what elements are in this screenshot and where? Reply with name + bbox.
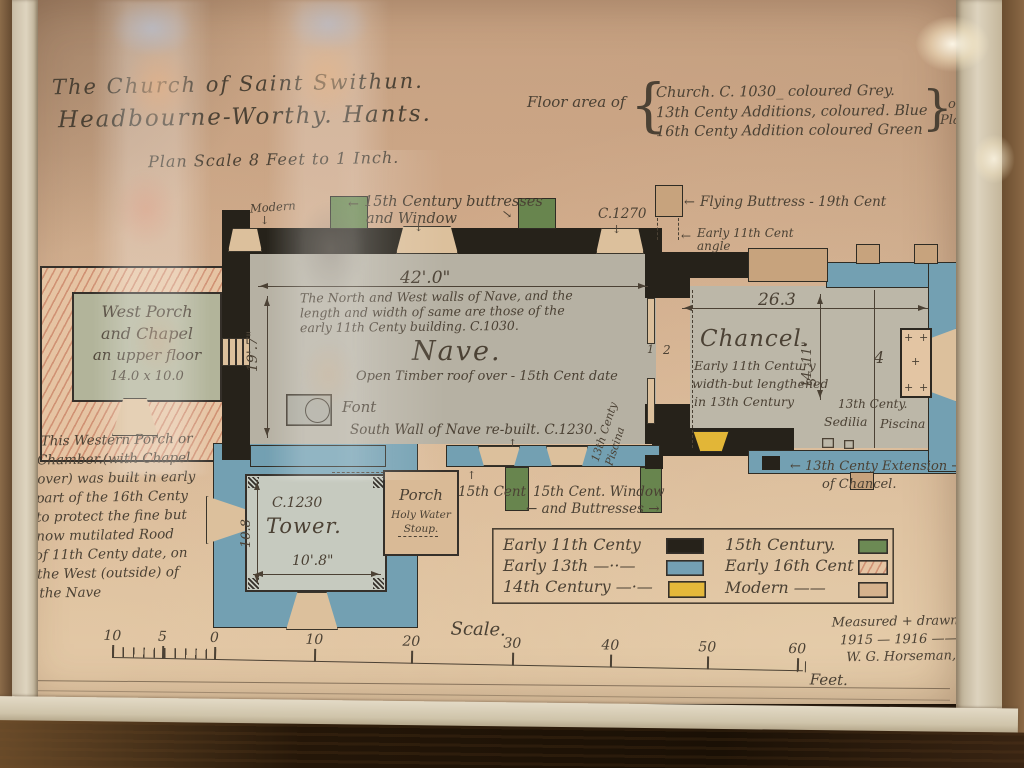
floor-area-prefix: Floor area of: [527, 95, 626, 110]
legend-label-14th: 14th Century —·—: [503, 579, 653, 595]
scale-tick-label-8: 60: [787, 642, 807, 656]
west-porch-note-line9: the Nave: [39, 586, 101, 601]
chancel-bay4: 4: [874, 350, 884, 366]
chancel-width-dimension-line: [682, 308, 928, 309]
extension-line2: of Chancel.: [822, 478, 896, 491]
scale-end-cap: [797, 661, 806, 672]
window-buttresses-line2: ← and Buttresses →: [526, 503, 660, 517]
credit-line1: Measured + drawn: [832, 614, 959, 629]
chancel-south-stub-b: [762, 456, 780, 470]
tower-title: Tower.: [266, 516, 342, 537]
nave-subtitle: Open Timber roof over - 15th Cent date: [356, 370, 618, 383]
flying-buttress-dash-left: [657, 218, 658, 240]
west-porch-note-line2: Chamber.(with Chapel: [37, 452, 191, 468]
legend-swatch-early13: [666, 560, 704, 576]
c1270-label: C.1270: [598, 208, 647, 222]
altar-cross-5: +: [919, 382, 928, 393]
sedilia-seat-b: [844, 440, 854, 449]
tower-horizontal-dimension: 10'.8": [292, 554, 333, 568]
angle-label-line1: Early 11th Cent: [697, 227, 794, 239]
chancel-title: Chancel.: [700, 328, 810, 351]
nave-width-dimension-line: [258, 286, 648, 287]
scale-tick-label-7: 50: [697, 640, 717, 654]
legend-swatch-15th: [858, 539, 888, 554]
scale-tick-6: [610, 655, 612, 668]
scale-tick-0: [112, 645, 114, 658]
modern-window: [228, 228, 262, 252]
west-porch-note-line5: to protect the fine but: [36, 509, 187, 525]
altar-cross-4: +: [904, 382, 913, 393]
cent15-arrow: ↑: [467, 470, 476, 481]
floor-area-line2: 13th Centy Additions, coloured. Blue: [656, 104, 928, 121]
angle-arrow: ←: [681, 230, 691, 242]
legend-label-early11: Early 11th Centy: [503, 537, 641, 553]
scale-tick-label-6: 40: [600, 638, 620, 652]
sedilia-divider: [874, 410, 875, 436]
chancel-north-buttress-a: [856, 244, 880, 264]
plan-scale-note: Plan Scale 8 Feet to 1 Inch.: [148, 150, 400, 170]
nave-height-dimension: 19'.7": [246, 331, 260, 372]
chancel-north-buttress-b: [914, 244, 938, 264]
altar-cross-1: +: [904, 332, 913, 343]
scale-tick-5: [512, 653, 514, 666]
porch-label-line1: Porch: [384, 488, 458, 503]
buttresses-arrow-left: ←: [348, 198, 359, 211]
north-window-15c: [396, 226, 458, 254]
sedilia-heading: 13th Centy.: [838, 398, 907, 410]
west-porch-label-line3: an upper floor: [74, 348, 220, 363]
scale-tick-7: [707, 656, 709, 669]
chancel-north-annex: [748, 248, 828, 282]
scale-tick-label-0: 10: [102, 629, 122, 643]
west-porch-note-line3: over) was built in early: [37, 471, 195, 487]
angle-label-line2: angle: [697, 240, 731, 252]
chancel-arch-jamb-north: [647, 298, 655, 344]
rood-doorway-bars: [228, 338, 244, 366]
altar-cross-3: +: [911, 356, 920, 367]
window-buttresses-line1: 15th Cent. Window: [533, 486, 665, 500]
floor-area-line3: 16th Centy Addition coloured Green: [656, 123, 923, 140]
font-label: Font: [342, 400, 376, 415]
scale-tick-label-4: 20: [401, 635, 421, 649]
legend-label-early16: Early 16th Cent: [725, 558, 854, 574]
chancel-note-line1: Early 11th Century: [694, 360, 816, 373]
legend-label-modern: Modern ——: [725, 580, 826, 596]
south-wall-arrow: ↑: [508, 438, 517, 449]
scale-tick-label-1: 5: [152, 630, 172, 644]
tower-horizontal-dimension-line: [253, 574, 381, 575]
frame-left: [12, 0, 38, 712]
scale-tick-1: [162, 646, 164, 659]
buttresses-arrow-down: ↓: [414, 222, 423, 233]
nave-height-dimension-line: [267, 296, 268, 438]
west-porch-dims: 14.0 x 10.0: [74, 370, 220, 383]
chancel-bay2: 2: [663, 344, 671, 356]
west-porch-note-block: ( This Western Porch or Chamber.(with Ch…: [24, 424, 227, 607]
tower-corner-se: [373, 578, 384, 589]
west-porch-note-line7: of 11th Centy date, on: [35, 547, 188, 563]
nave-south-wall-west: [250, 445, 386, 467]
south-window-15c-b: [546, 446, 588, 466]
flying-buttress-label: Flying Buttress - 19th Cent: [700, 196, 886, 210]
south-wall-note: South Wall of Nave re-built. C.1230.: [350, 424, 597, 438]
legend-swatch-early11: [666, 538, 704, 554]
tower-vertical-dimension: 10.8: [240, 519, 253, 548]
altar-cross-2: +: [919, 332, 928, 343]
west-porch-note-line1: This Western Porch or: [41, 433, 193, 449]
sedilia-label: Sedilia: [824, 416, 867, 429]
nave-title: Nave.: [412, 338, 502, 365]
nave-note-line2: length and width of same are those of th…: [300, 305, 565, 320]
flying-buttress-block: [655, 185, 683, 217]
scale-tick-label-2: 0: [204, 631, 224, 645]
wall-edge-right: [1002, 0, 1024, 768]
buttresses-label-line2: and Window: [366, 212, 457, 227]
porch-label-line2: Holy Water: [384, 510, 458, 521]
chancel-width-dimension: 26.3: [758, 292, 796, 309]
chancel-note-line3: in 13th Century: [694, 396, 794, 409]
chancel-bay3: 3: [806, 378, 819, 386]
flying-buttress-dash-right: [678, 218, 679, 240]
extension-line1: ← 13th Centy Extension →: [790, 460, 962, 473]
modern-label: Modern: [250, 200, 296, 215]
nave-width-dimension: 42'.0": [400, 270, 450, 287]
sedilia-seat-a: [822, 438, 834, 448]
scale-tick-4: [411, 651, 413, 664]
legend-swatch-early16: [858, 560, 888, 575]
scale-title: Scale.: [450, 620, 506, 639]
flying-buttress-arrow: ←: [684, 196, 695, 209]
scale-tick-label-5: 30: [502, 636, 522, 650]
tower-date: C.1230: [272, 496, 322, 510]
chancel-south-stub-a: [645, 455, 663, 469]
nave-note-line3: early 11th Centy building. C.1030.: [300, 320, 519, 335]
c1270-arrow: ↓: [612, 224, 621, 235]
legend-swatch-14th: [668, 581, 706, 598]
west-porch-note-line6: now mutilated Rood: [36, 528, 174, 544]
west-porch-label-line1: West Porch: [74, 304, 220, 320]
cent15-label: 15th Cent: [458, 486, 526, 500]
buttresses-label-line1: 15th Century buttresses: [364, 195, 543, 210]
piscina-label: Piscina: [880, 418, 925, 431]
chancel-north-wall-11c: [662, 252, 750, 278]
tower-dashed-edge: [332, 472, 384, 473]
font-basin-icon: [305, 398, 330, 423]
chancel-arch-jamb-south: [647, 378, 655, 424]
west-porch-note-line8: the West (outside) of: [37, 566, 179, 582]
nave-west-wall-lower: [222, 366, 250, 460]
legend-label-early13: Early 13th —··—: [503, 558, 635, 574]
porch-label-line3: Stoup.: [384, 524, 458, 535]
west-porch-label-line2: and Chapel: [74, 326, 220, 342]
scale-tick-3: [314, 649, 316, 662]
south-porch-dashed: [398, 536, 438, 537]
scale-baseline: [112, 657, 803, 671]
floor-area-line1: Church. C. 1030_ coloured Grey.: [656, 84, 895, 101]
modern-arrow: ↓: [260, 215, 269, 226]
east-window: [930, 328, 958, 402]
frame-right: [956, 0, 1004, 718]
tower-vertical-dimension-line: [257, 480, 258, 584]
legend-swatch-modern: [858, 582, 888, 598]
framed-church-plan-photo: The Church of Saint Swithun. Headbourne-…: [0, 0, 1024, 768]
west-porch-note-line4: part of the 16th Centy: [36, 490, 189, 506]
credit-line2: 1915 — 1916 ——: [840, 632, 958, 647]
scale-tick-label-3: 10: [304, 633, 324, 647]
legend-label-15th: 15th Century.: [725, 537, 836, 553]
scale-tick-2: [214, 647, 216, 660]
chancel-bay1: 1: [647, 344, 654, 355]
chancel-west-dashed-line: [692, 290, 693, 448]
